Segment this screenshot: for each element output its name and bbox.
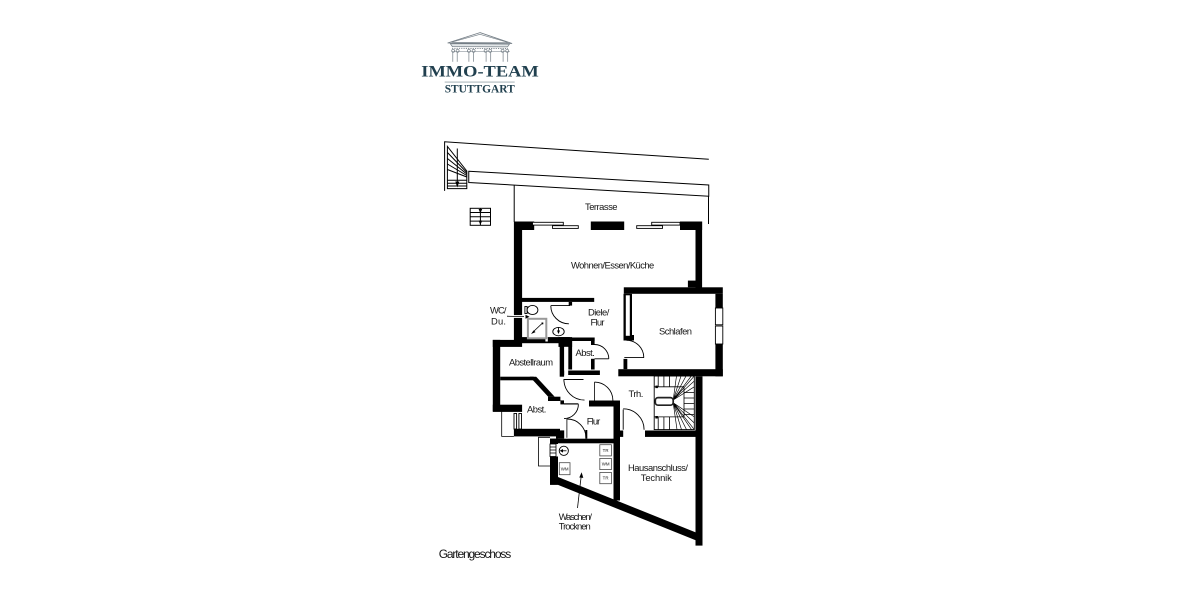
svg-text:Schlafen: Schlafen (659, 326, 692, 337)
svg-text:Du.: Du. (491, 316, 506, 327)
svg-text:Abstellraum: Abstellraum (509, 356, 553, 367)
svg-text:Abst.: Abst. (576, 347, 595, 358)
svg-text:Technik: Technik (641, 472, 672, 483)
svg-text:IMMO-TEAM: IMMO-TEAM (421, 64, 538, 81)
svg-text:Trh.: Trh. (629, 388, 644, 399)
svg-text:TR: TR (603, 476, 609, 481)
svg-text:WM: WM (561, 466, 569, 471)
svg-text:Trocknen: Trocknen (559, 520, 591, 531)
svg-text:Flur: Flur (587, 416, 601, 427)
svg-text:WM: WM (602, 462, 610, 467)
svg-text:Abst.: Abst. (527, 404, 546, 415)
svg-text:TR: TR (603, 448, 609, 453)
svg-text:WC/: WC/ (490, 304, 507, 315)
svg-text:Gartengeschoss: Gartengeschoss (439, 547, 512, 561)
svg-text:STUTTGART: STUTTGART (445, 82, 515, 96)
svg-text:Flur: Flur (591, 316, 605, 327)
svg-text:Wohnen/Essen/Küche: Wohnen/Essen/Küche (571, 260, 654, 271)
svg-text:Terrasse: Terrasse (585, 201, 618, 212)
